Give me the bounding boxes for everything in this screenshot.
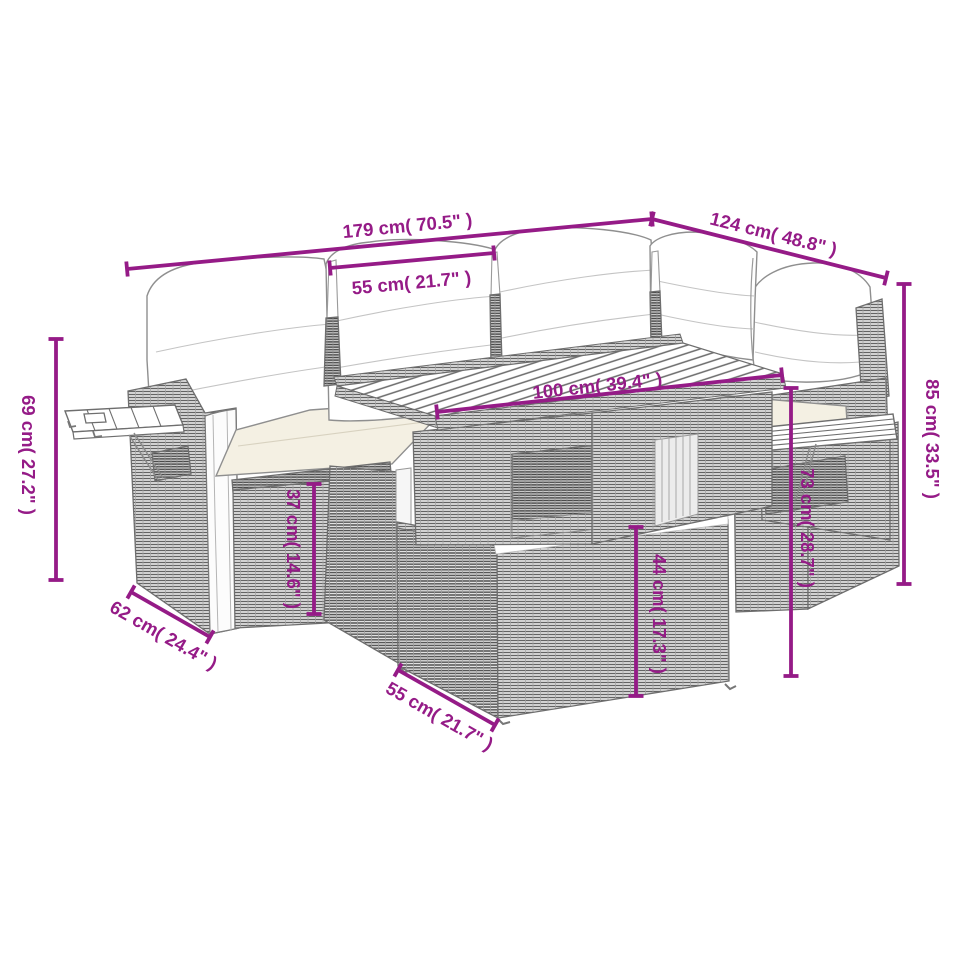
- svg-text:69 cm( 27.2" ): 69 cm( 27.2" ): [18, 395, 39, 515]
- svg-text:37 cm( 14.6" ): 37 cm( 14.6" ): [283, 489, 304, 609]
- svg-text:85 cm( 33.5" ): 85 cm( 33.5" ): [922, 379, 943, 499]
- svg-text:73 cm( 28.7" ): 73 cm( 28.7" ): [797, 468, 818, 588]
- svg-text:44 cm( 17.3" ): 44 cm( 17.3" ): [649, 554, 670, 674]
